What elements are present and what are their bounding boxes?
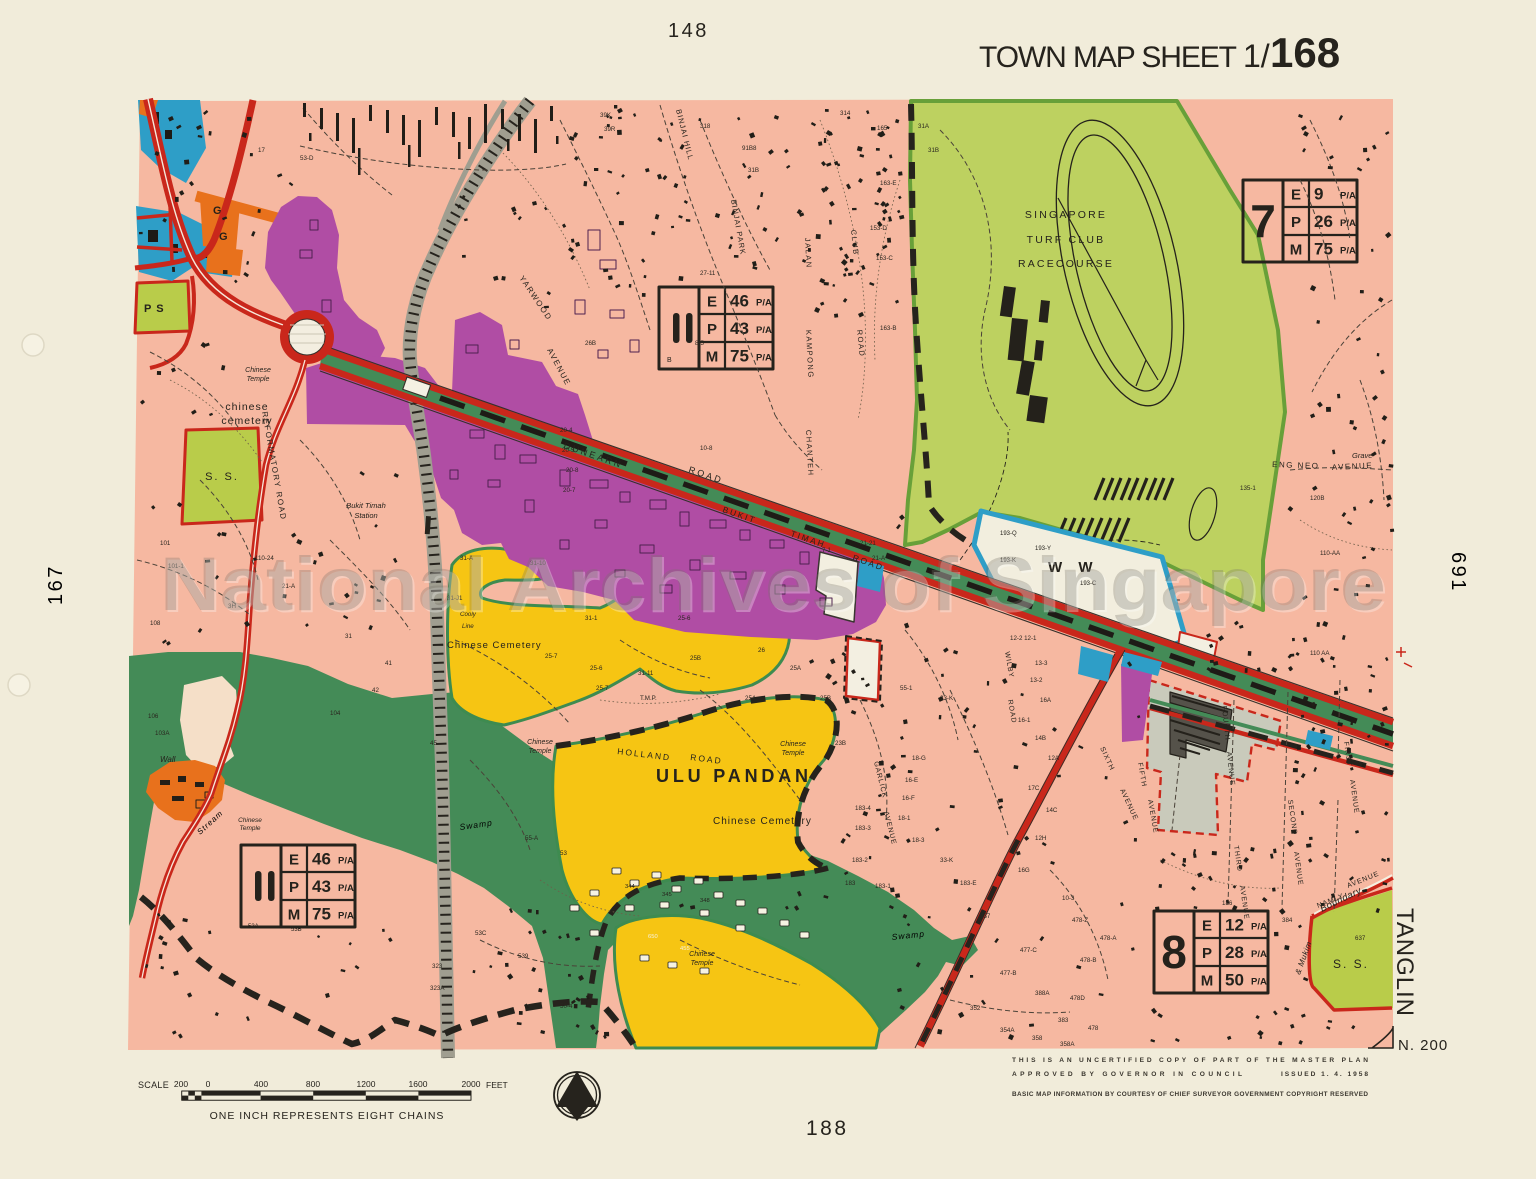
svg-text:153-C: 153-C [876,255,893,262]
svg-text:E: E [1202,918,1212,935]
svg-text:186: 186 [1222,900,1233,907]
svg-text:53B: 53B [291,927,302,933]
svg-text:TANGLIN: TANGLIN [1391,908,1418,1016]
svg-text:18-3: 18-3 [912,837,925,844]
svg-text:ENG NEO: ENG NEO [1272,460,1320,471]
svg-text:383: 383 [1058,1017,1069,1024]
svg-text:53C: 53C [475,930,487,937]
svg-text:P: P [1202,945,1212,962]
svg-text:P/A: P/A [1340,191,1356,202]
svg-text:Temple: Temple [782,750,805,757]
svg-text:10-8: 10-8 [700,445,713,452]
svg-text:183-1: 183-1 [875,883,891,890]
svg-text:E: E [289,852,299,869]
svg-text:P/A: P/A [1251,922,1267,933]
svg-text:478-B: 478-B [1080,957,1097,964]
svg-text:167: 167 [45,564,67,605]
svg-text:478-A: 478-A [1100,935,1117,942]
svg-text:53-D: 53-D [300,155,314,162]
svg-text:26: 26 [1314,212,1333,231]
svg-text:ULU PANDAN: ULU PANDAN [656,766,808,786]
svg-text:P: P [1291,214,1301,231]
svg-text:1600: 1600 [409,1079,428,1089]
svg-text:Temple: Temple [529,748,552,755]
svg-text:153-D: 153-D [870,225,887,232]
svg-text:P/A: P/A [338,910,354,921]
svg-text:31B: 31B [928,147,939,154]
svg-text:E: E [1291,187,1301,204]
svg-text:20-7: 20-7 [563,487,576,494]
svg-text:9: 9 [1314,185,1323,204]
svg-text:T.M.P.: T.M.P. [640,695,657,702]
svg-text:ONE INCH REPRESENTS EIGHT: ONE INCH REPRESENTS EIGHT CHAINS [210,1110,445,1122]
svg-text:P/A: P/A [1251,949,1267,960]
svg-text:345: 345 [662,892,672,898]
svg-text:13-2: 13-2 [1030,677,1043,684]
svg-text:SCALE: SCALE [138,1080,169,1090]
svg-text:M: M [288,906,301,923]
svg-text:39R: 39R [604,126,616,133]
svg-text:Temple: Temple [239,825,260,832]
svg-text:539: 539 [518,953,529,960]
svg-text:P/A: P/A [1251,976,1267,987]
svg-text:S. S.: S. S. [1333,957,1369,971]
svg-text:110 AA: 110 AA [1310,650,1330,657]
svg-text:8-5: 8-5 [695,340,705,347]
svg-text:50: 50 [1225,970,1244,989]
svg-text:13-3: 13-3 [1035,660,1048,667]
svg-text:16A: 16A [1040,697,1052,704]
svg-text:165: 165 [877,125,888,132]
svg-text:183-4: 183-4 [855,805,871,812]
svg-text:46: 46 [312,850,331,869]
svg-text:APPROVED BY GOVERNOR IN COUNCI: APPROVED BY GOVERNOR IN COUNCIL [1012,1071,1242,1078]
svg-text:31B: 31B [748,167,759,174]
svg-text:193-Q: 193-Q [1000,531,1017,537]
svg-text:Chinese: Chinese [689,951,715,958]
svg-text:S. S.: S. S. [205,471,239,483]
svg-text:691: 691 [1447,552,1469,593]
svg-text:33-K: 33-K [940,857,954,864]
svg-text:14B: 14B [1035,735,1046,742]
svg-text:31A: 31A [918,123,930,130]
svg-text:Chinese: Chinese [527,739,553,746]
svg-text:352: 352 [970,1005,981,1012]
svg-text:12H: 12H [1035,835,1046,842]
svg-text:477-C: 477-C [1020,947,1037,954]
svg-text:20-4: 20-4 [560,427,573,434]
svg-text:53A: 53A [248,924,259,930]
svg-text:14C: 14C [1046,807,1058,814]
svg-text:BASIC MAP INFORMATION BY COURT: BASIC MAP INFORMATION BY COURTESY OF CHI… [1012,1091,1368,1098]
svg-text:Chinese Cemetery: Chinese Cemetery [447,640,542,651]
svg-text:163-B: 163-B [880,325,897,332]
svg-text:16-E: 16-E [905,777,918,784]
svg-text:P/A: P/A [756,352,772,363]
svg-text:RACECOURSE: RACECOURSE [1018,258,1114,270]
svg-text:55-1: 55-1 [900,685,913,692]
svg-text:384: 384 [1282,917,1293,924]
svg-text:Station: Station [354,511,377,520]
svg-text:N. 200: N. 200 [1398,1037,1448,1054]
svg-text:18-1: 18-1 [898,815,911,822]
svg-text:135-1: 135-1 [1240,485,1256,492]
svg-text:53: 53 [560,850,567,857]
svg-text:75: 75 [730,346,749,365]
svg-text:25B: 25B [690,655,701,662]
svg-text:Chinese: Chinese [780,741,806,748]
svg-text:M: M [1201,972,1214,989]
svg-text:318: 318 [700,123,711,130]
svg-text:16-F: 16-F [902,795,915,802]
svg-text:Chinese Cemetery: Chinese Cemetery [713,816,812,827]
svg-text:28: 28 [1225,943,1244,962]
svg-text:12: 12 [1225,916,1244,935]
svg-text:P/A: P/A [756,325,772,336]
svg-text:103A: 103A [155,730,170,737]
svg-text:120B: 120B [1310,495,1324,502]
svg-text:104: 104 [330,710,341,717]
svg-text:91B8: 91B8 [742,145,757,152]
svg-text:168: 168 [1270,29,1340,76]
svg-text:20-8: 20-8 [566,467,579,474]
svg-text:33-K: 33-K [940,695,954,702]
svg-text:P/A: P/A [338,856,354,867]
svg-text:16-1: 16-1 [1018,717,1031,724]
svg-text:2000: 2000 [462,1079,481,1089]
svg-text:1200: 1200 [357,1079,376,1089]
svg-text:M: M [1290,241,1303,258]
svg-text:27-11: 27-11 [700,270,716,277]
svg-text:800: 800 [306,1079,320,1089]
svg-text:26B: 26B [585,340,596,347]
svg-text:FEET: FEET [486,1080,508,1090]
svg-text:16G: 16G [1018,867,1030,874]
svg-text:358: 358 [1032,1035,1043,1042]
svg-text:10-3: 10-3 [1062,895,1075,902]
svg-text:254: 254 [745,695,756,702]
svg-text:P/A: P/A [338,883,354,894]
svg-text:B: B [667,357,672,364]
svg-text:31: 31 [345,633,352,640]
svg-text:314: 314 [840,110,851,117]
svg-text:50-4: 50-4 [560,1003,573,1010]
svg-text:388A: 388A [1035,990,1050,997]
svg-text:P: P [707,321,717,338]
svg-text:JALAN: JALAN [803,238,814,269]
svg-text:TURF CLUB: TURF CLUB [1027,234,1106,246]
svg-text:637: 637 [980,913,991,920]
svg-text:42: 42 [372,687,379,694]
svg-text:200: 200 [174,1079,188,1089]
svg-text:1/: 1/ [1243,38,1270,74]
svg-text:183: 183 [845,880,856,887]
svg-text:8: 8 [1161,926,1187,978]
svg-text:25B: 25B [820,695,831,702]
svg-text:E: E [707,294,717,311]
svg-text:P S: P S [144,303,165,315]
svg-text:23B: 23B [835,740,846,747]
svg-text:41: 41 [385,660,392,667]
svg-text:12A: 12A [1048,755,1060,762]
svg-text:25A: 25A [790,665,802,672]
svg-text:P: P [289,879,299,896]
svg-text:25-7: 25-7 [596,685,609,692]
svg-text:344: 344 [625,884,635,890]
svg-text:26: 26 [758,647,765,654]
svg-text:ISSUED 1. 4. 1958: ISSUED 1. 4. 1958 [1281,1071,1368,1078]
svg-text:7: 7 [1250,195,1276,247]
svg-text:106: 106 [148,713,159,720]
svg-text:43: 43 [312,877,331,896]
svg-text:637: 637 [1355,935,1366,942]
svg-text:TOWN MAP SHEET: TOWN MAP SHEET [979,41,1237,74]
svg-text:Chinese: Chinese [245,367,271,374]
svg-text:183-2: 183-2 [852,857,868,864]
svg-text:323: 323 [432,963,443,970]
svg-text:400: 400 [254,1079,268,1089]
svg-text:18-G: 18-G [912,755,926,762]
svg-text:163-E: 163-E [880,180,897,187]
svg-text:478D: 478D [1070,995,1085,1002]
svg-text:17: 17 [258,147,265,154]
svg-text:Grave: Grave [1352,451,1372,460]
svg-text:477-B: 477-B [1000,970,1017,977]
svg-text:P/A: P/A [1340,245,1356,256]
svg-text:148: 148 [668,20,709,42]
svg-text:45: 45 [430,740,437,747]
svg-text:323A: 323A [430,985,445,992]
svg-text:17C: 17C [1028,785,1040,792]
svg-text:31-11: 31-11 [638,670,654,677]
svg-text:183-3: 183-3 [855,825,871,832]
svg-text:Chinese: Chinese [238,817,262,824]
svg-text:Temple: Temple [691,960,714,967]
svg-text:478: 478 [1088,1025,1099,1032]
svg-text:46: 46 [730,292,749,311]
svg-text:55-A: 55-A [525,835,539,842]
svg-text:Bukit Timah: Bukit Timah [346,501,386,510]
svg-text:M: M [706,348,719,365]
svg-text:SINGAPORE: SINGAPORE [1025,209,1107,221]
svg-text:358A: 358A [1060,1041,1075,1048]
svg-text:National Archives of Singapore: National Archives of Singapore [160,542,1386,627]
svg-text:25-7: 25-7 [545,653,558,660]
svg-text:25-6: 25-6 [590,665,603,672]
svg-text:478-Z: 478-Z [1072,917,1088,924]
svg-text:75: 75 [312,904,331,923]
svg-text:43: 43 [730,319,749,338]
svg-text:348: 348 [700,898,710,904]
svg-text:183-E: 183-E [960,880,977,887]
svg-text:P/A: P/A [756,298,772,309]
svg-text:12-2 12-1: 12-2 12-1 [1010,635,1037,642]
svg-text:39K: 39K [600,112,612,119]
svg-text:650: 650 [648,934,658,940]
svg-text:Temple: Temple [247,376,270,383]
svg-text:0: 0 [206,1079,211,1089]
svg-text:Wall: Wall [160,755,176,764]
svg-text:354A: 354A [1000,1027,1015,1034]
svg-text:188: 188 [806,1117,849,1140]
